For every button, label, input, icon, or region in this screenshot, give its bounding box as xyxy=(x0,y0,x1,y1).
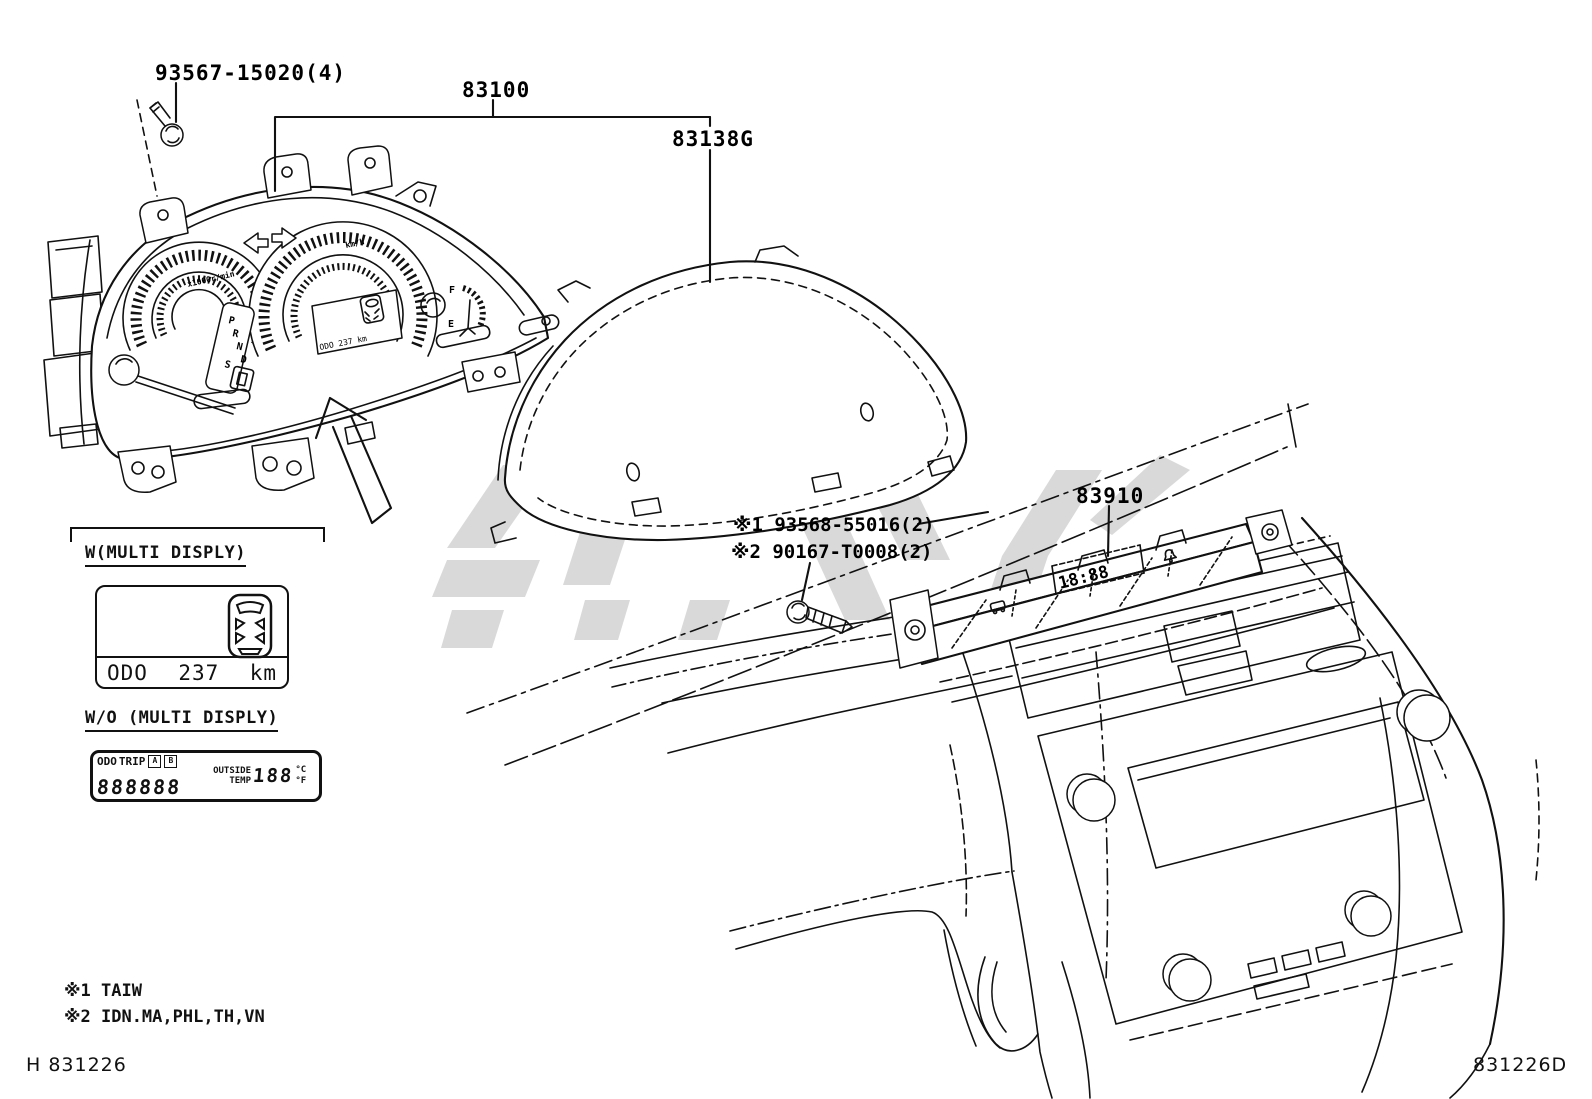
fuel-f-label: F xyxy=(449,285,455,296)
multi-display-screen: ODO 237 km xyxy=(95,585,289,689)
lens-cover-drawing xyxy=(491,246,966,543)
lcd-trip-a-badge: A xyxy=(148,755,161,768)
label-83138g: 83138G xyxy=(672,127,754,151)
lcd-display: ODO TRIP A B 888888 OUTSIDE TEMP 188 °C … xyxy=(90,750,322,802)
odo-value: 237 xyxy=(178,661,219,685)
lcd-odometer-digits: 888888 xyxy=(96,777,200,797)
footnote-1: ※1 TAIW xyxy=(64,978,142,1004)
with-multi-display-title: W(MULTI DISPLY) xyxy=(85,543,246,567)
figure-code-right: 831226D xyxy=(1473,1054,1567,1076)
odo-label: ODO xyxy=(107,661,148,685)
lcd-deg-f: °F xyxy=(295,776,306,787)
lcd-odo-label: ODO xyxy=(97,756,117,767)
odo-unit: km xyxy=(250,661,277,685)
label-note2: ※2 90167-T0008(2) xyxy=(731,541,933,563)
fuel-e-label: E xyxy=(448,319,454,330)
parts-diagram-page: x1000r/min km/h P R N D S xyxy=(0,0,1592,1099)
label-note1: ※1 93568-55016(2) xyxy=(733,514,935,536)
lcd-outside-label: OUTSIDE xyxy=(213,766,251,776)
label-83910: 83910 xyxy=(1076,484,1144,508)
odo-readout: ODO 237 km xyxy=(97,656,287,687)
multi-display-bracket xyxy=(70,527,325,542)
footnote-2: ※2 IDN.MA,PHL,TH,VN xyxy=(64,1004,265,1030)
center-display-unit-drawing: 18:88 xyxy=(890,510,1292,668)
car-top-view-icon xyxy=(227,593,273,659)
without-multi-display-title: W/O (MULTI DISPLY) xyxy=(85,708,278,732)
lcd-deg-c: °C xyxy=(295,765,306,776)
screw-top-drawing xyxy=(150,102,183,146)
label-screw-top: 93567-15020(4) xyxy=(155,61,346,85)
instrument-cluster-drawing: x1000r/min km/h P R N D S xyxy=(44,146,560,492)
lcd-temp-digits: 188 xyxy=(252,767,294,786)
label-83100: 83100 xyxy=(462,78,530,102)
lcd-trip-label: TRIP xyxy=(119,756,146,767)
lcd-temp-label: TEMP xyxy=(229,776,251,786)
figure-code-left: H 831226 xyxy=(26,1054,127,1076)
lcd-trip-b-badge: B xyxy=(164,755,177,768)
